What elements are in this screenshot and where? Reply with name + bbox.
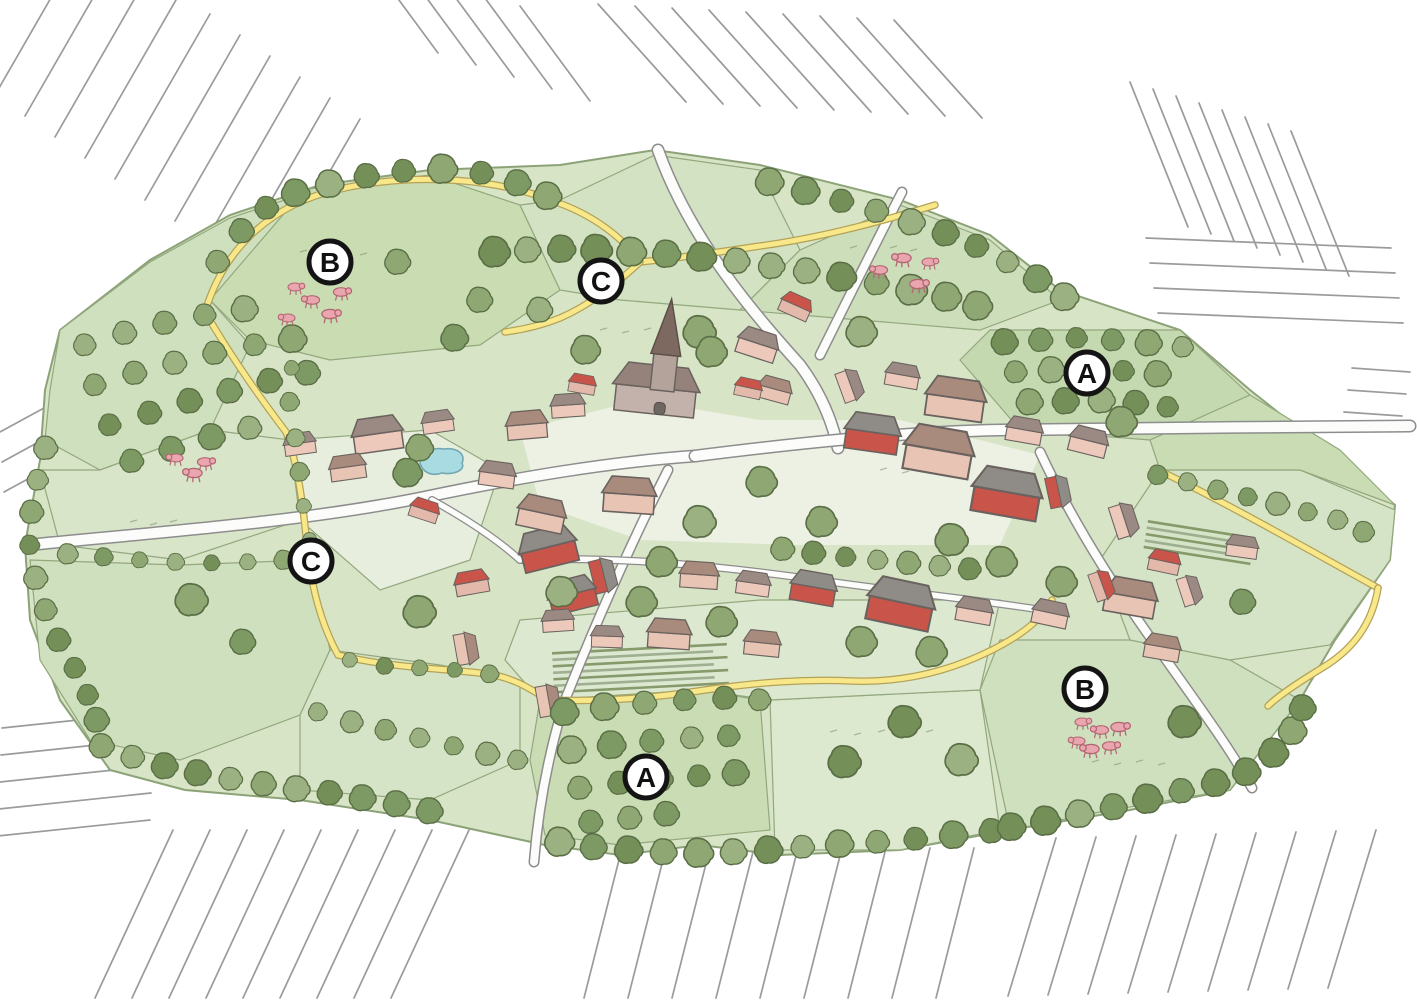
marker-c-top: C	[580, 260, 622, 302]
marker-c-left: C	[290, 540, 332, 582]
marker-label: B	[1075, 674, 1095, 705]
marker-label: A	[1077, 358, 1097, 389]
marker-a-right: A	[1066, 352, 1108, 394]
marker-label: B	[320, 247, 340, 278]
marker-b-bottom: B	[1064, 668, 1106, 710]
marker-b-top: B	[309, 241, 351, 283]
marker-label: A	[636, 762, 656, 793]
marker-label: C	[591, 266, 611, 297]
village-map-illustration: B C A C B A	[0, 0, 1417, 1002]
marker-a-bottom: A	[625, 756, 667, 798]
marker-label: C	[301, 546, 321, 577]
map-svg: B C A C B A	[0, 0, 1417, 1002]
